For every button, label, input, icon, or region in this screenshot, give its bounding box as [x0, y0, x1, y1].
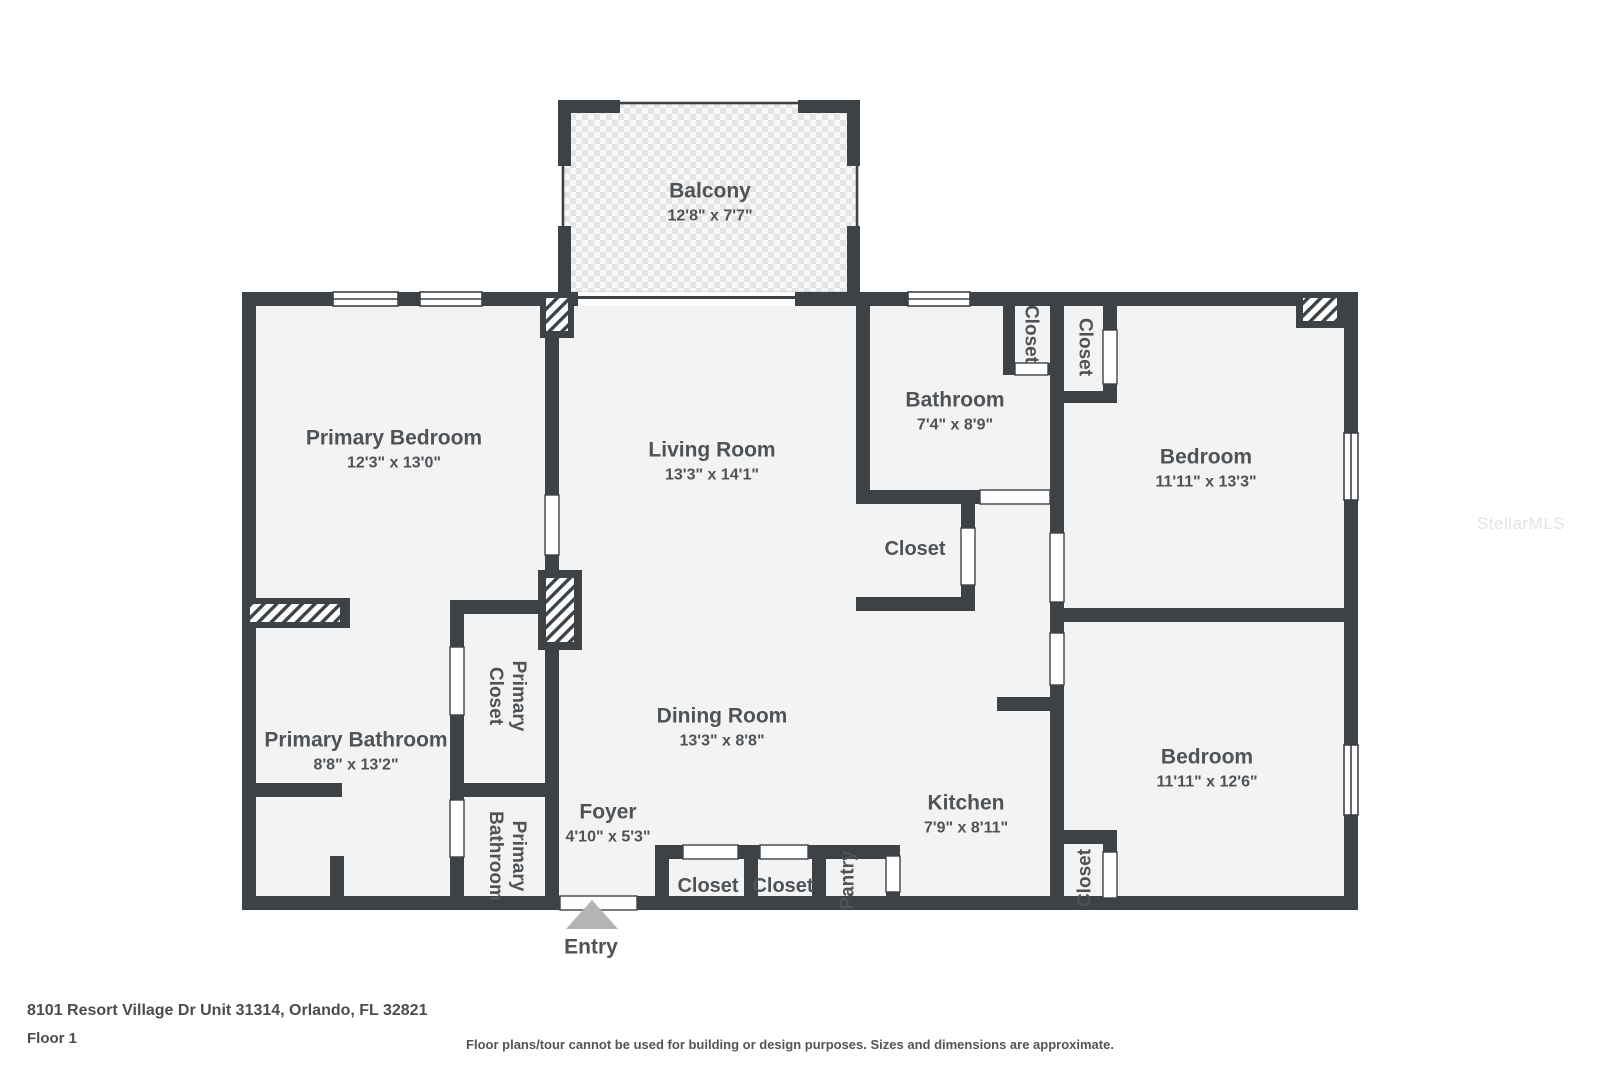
room-fill	[249, 299, 1351, 903]
room-label-bedroom-closet: Closet	[1075, 849, 1098, 907]
balcony-door-opening	[578, 292, 795, 306]
room-label-kitchen: Kitchen 7'9" x 8'11"	[924, 790, 1008, 837]
room-label-pantry: Pantry	[838, 850, 861, 909]
property-address: 8101 Resort Village Dr Unit 31314, Orlan…	[27, 1002, 427, 1020]
floor-plan-page: Balcony 12'8" x 7'7" Primary Bedroom 12'…	[0, 0, 1600, 1066]
room-label-bathroom: Bathroom 7'4" x 8'9"	[905, 387, 1004, 434]
room-label-bedroom-bottom: Bedroom 11'11" x 12'6"	[1156, 744, 1257, 791]
room-label-primary-bedroom: Primary Bedroom 12'3" x 13'0"	[306, 425, 482, 472]
room-label-bedroom-top: Bedroom 11'11" x 13'3"	[1155, 444, 1256, 491]
room-label-foyer-closet-1: Closet	[677, 874, 738, 898]
room-label-hall-closet: Closet	[884, 537, 945, 561]
entry-label: Entry	[564, 934, 618, 959]
room-label-primary-closet: Primary Closet	[483, 661, 529, 732]
room-label-dining-room: Dining Room 13'3" x 8'8"	[657, 703, 788, 750]
floor-plan-drawing	[0, 0, 1600, 1066]
floor-number: Floor 1	[27, 1030, 77, 1047]
room-label-bathroom-closet-1: Closet	[1019, 305, 1042, 363]
room-label-balcony: Balcony 12'8" x 7'7"	[667, 178, 752, 225]
room-label-living-room: Living Room 13'3" x 14'1"	[648, 437, 775, 484]
room-label-primary-bathroom: Primary Bathroom 8'8" x 13'2"	[264, 727, 447, 774]
room-label-foyer: Foyer 4'10" x 5'3"	[565, 799, 650, 846]
room-label-foyer-closet-2: Closet	[752, 874, 813, 898]
disclaimer-text: Floor plans/tour cannot be used for buil…	[466, 1037, 1114, 1052]
room-label-bathroom-closet-2: Closet	[1073, 318, 1096, 376]
stellar-mls-watermark: StellarMLS	[1477, 514, 1565, 534]
room-label-primary-bathroom-small: Primary Bathroom	[483, 811, 529, 901]
